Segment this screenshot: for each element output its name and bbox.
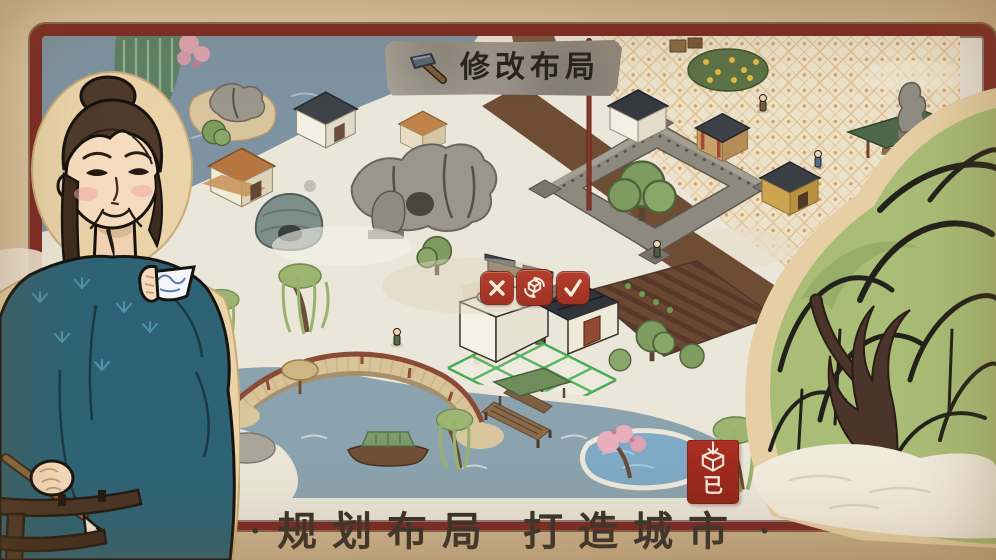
slogan: · 规划布局 打造城市 · [12,506,996,558]
mode-banner-label: 修改布局 [460,53,600,83]
slogan-right-dot: · [759,513,770,551]
storage-banner-button[interactable]: 已 [687,440,739,504]
store-box-icon [698,440,728,474]
storage-banner-label: 已 [703,476,723,496]
rotate-cube-icon [522,275,547,300]
hammer-icon [407,50,447,86]
sunflower-patch [688,49,768,91]
screenshot-stage: 已 修改布局 [0,0,996,560]
city-scene [42,36,960,498]
slogan-phrase-1: 规划布局 [277,512,497,552]
cancel-button[interactable] [481,272,513,304]
game-frame: 已 [30,24,996,530]
mode-banner: 修改布局 [385,40,622,96]
snow-patch [272,226,412,266]
rotate-button[interactable] [517,270,552,305]
cancel-icon [487,278,507,298]
confirm-button[interactable] [557,272,589,304]
slogan-phrase-2: 打造城市 [523,512,743,552]
game-viewport[interactable]: 已 [42,36,984,522]
slogan-left-dot: · [250,513,261,551]
confirm-icon [562,278,584,298]
